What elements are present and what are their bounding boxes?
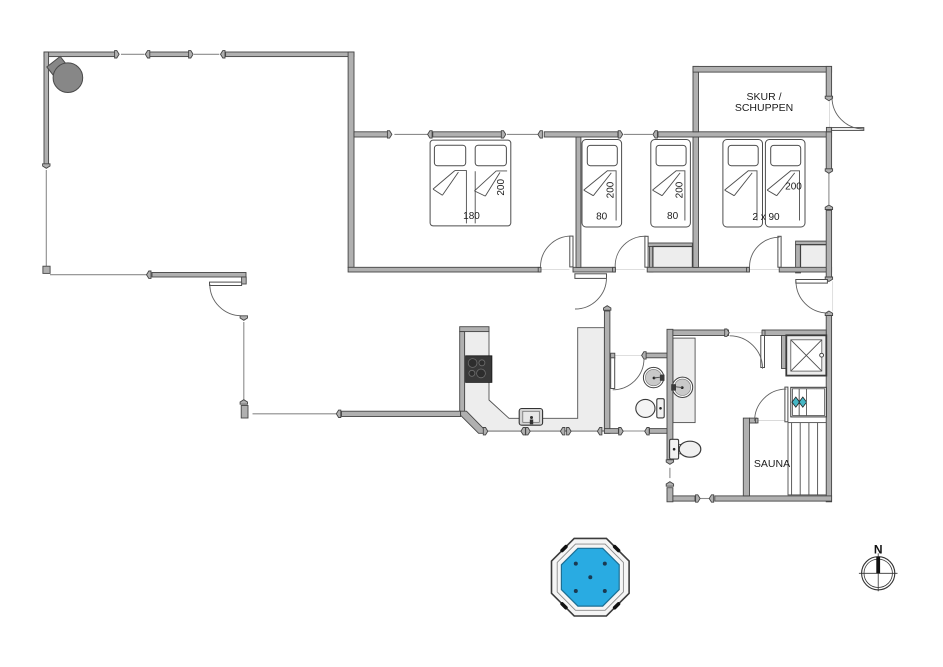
svg-text:80: 80 <box>667 211 679 222</box>
svg-text:180: 180 <box>463 211 480 222</box>
svg-text:200: 200 <box>674 181 685 198</box>
svg-text:N: N <box>874 543 883 557</box>
svg-text:200: 200 <box>496 179 507 196</box>
svg-text:200: 200 <box>605 181 616 198</box>
svg-text:80: 80 <box>596 212 608 223</box>
svg-text:SAUNA: SAUNA <box>754 458 790 470</box>
svg-text:2 x 90: 2 x 90 <box>752 212 780 223</box>
svg-text:200: 200 <box>785 182 802 193</box>
svg-text:SCHUPPEN: SCHUPPEN <box>735 102 793 114</box>
